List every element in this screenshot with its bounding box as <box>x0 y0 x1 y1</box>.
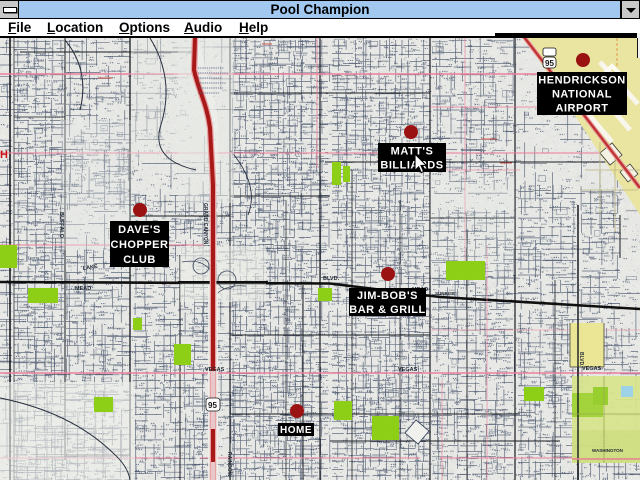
svg-text:NATIONAL: NATIONAL <box>552 88 612 100</box>
svg-text:CHOPPER: CHOPPER <box>111 239 169 251</box>
svg-text:DAVE'S: DAVE'S <box>118 224 161 236</box>
svg-text:AIRPORT: AIRPORT <box>556 102 609 114</box>
svg-text:HENDRICKSON: HENDRICKSON <box>538 74 625 86</box>
svg-text:HOME: HOME <box>280 425 312 436</box>
svg-text:BILLIARDS: BILLIARDS <box>380 159 443 171</box>
svg-text:JIM-BOB'S: JIM-BOB'S <box>357 290 418 302</box>
svg-text:BAR & GRILL: BAR & GRILL <box>349 304 425 316</box>
svg-text:MATT'S: MATT'S <box>391 145 434 157</box>
svg-text:CLUB: CLUB <box>123 254 156 266</box>
